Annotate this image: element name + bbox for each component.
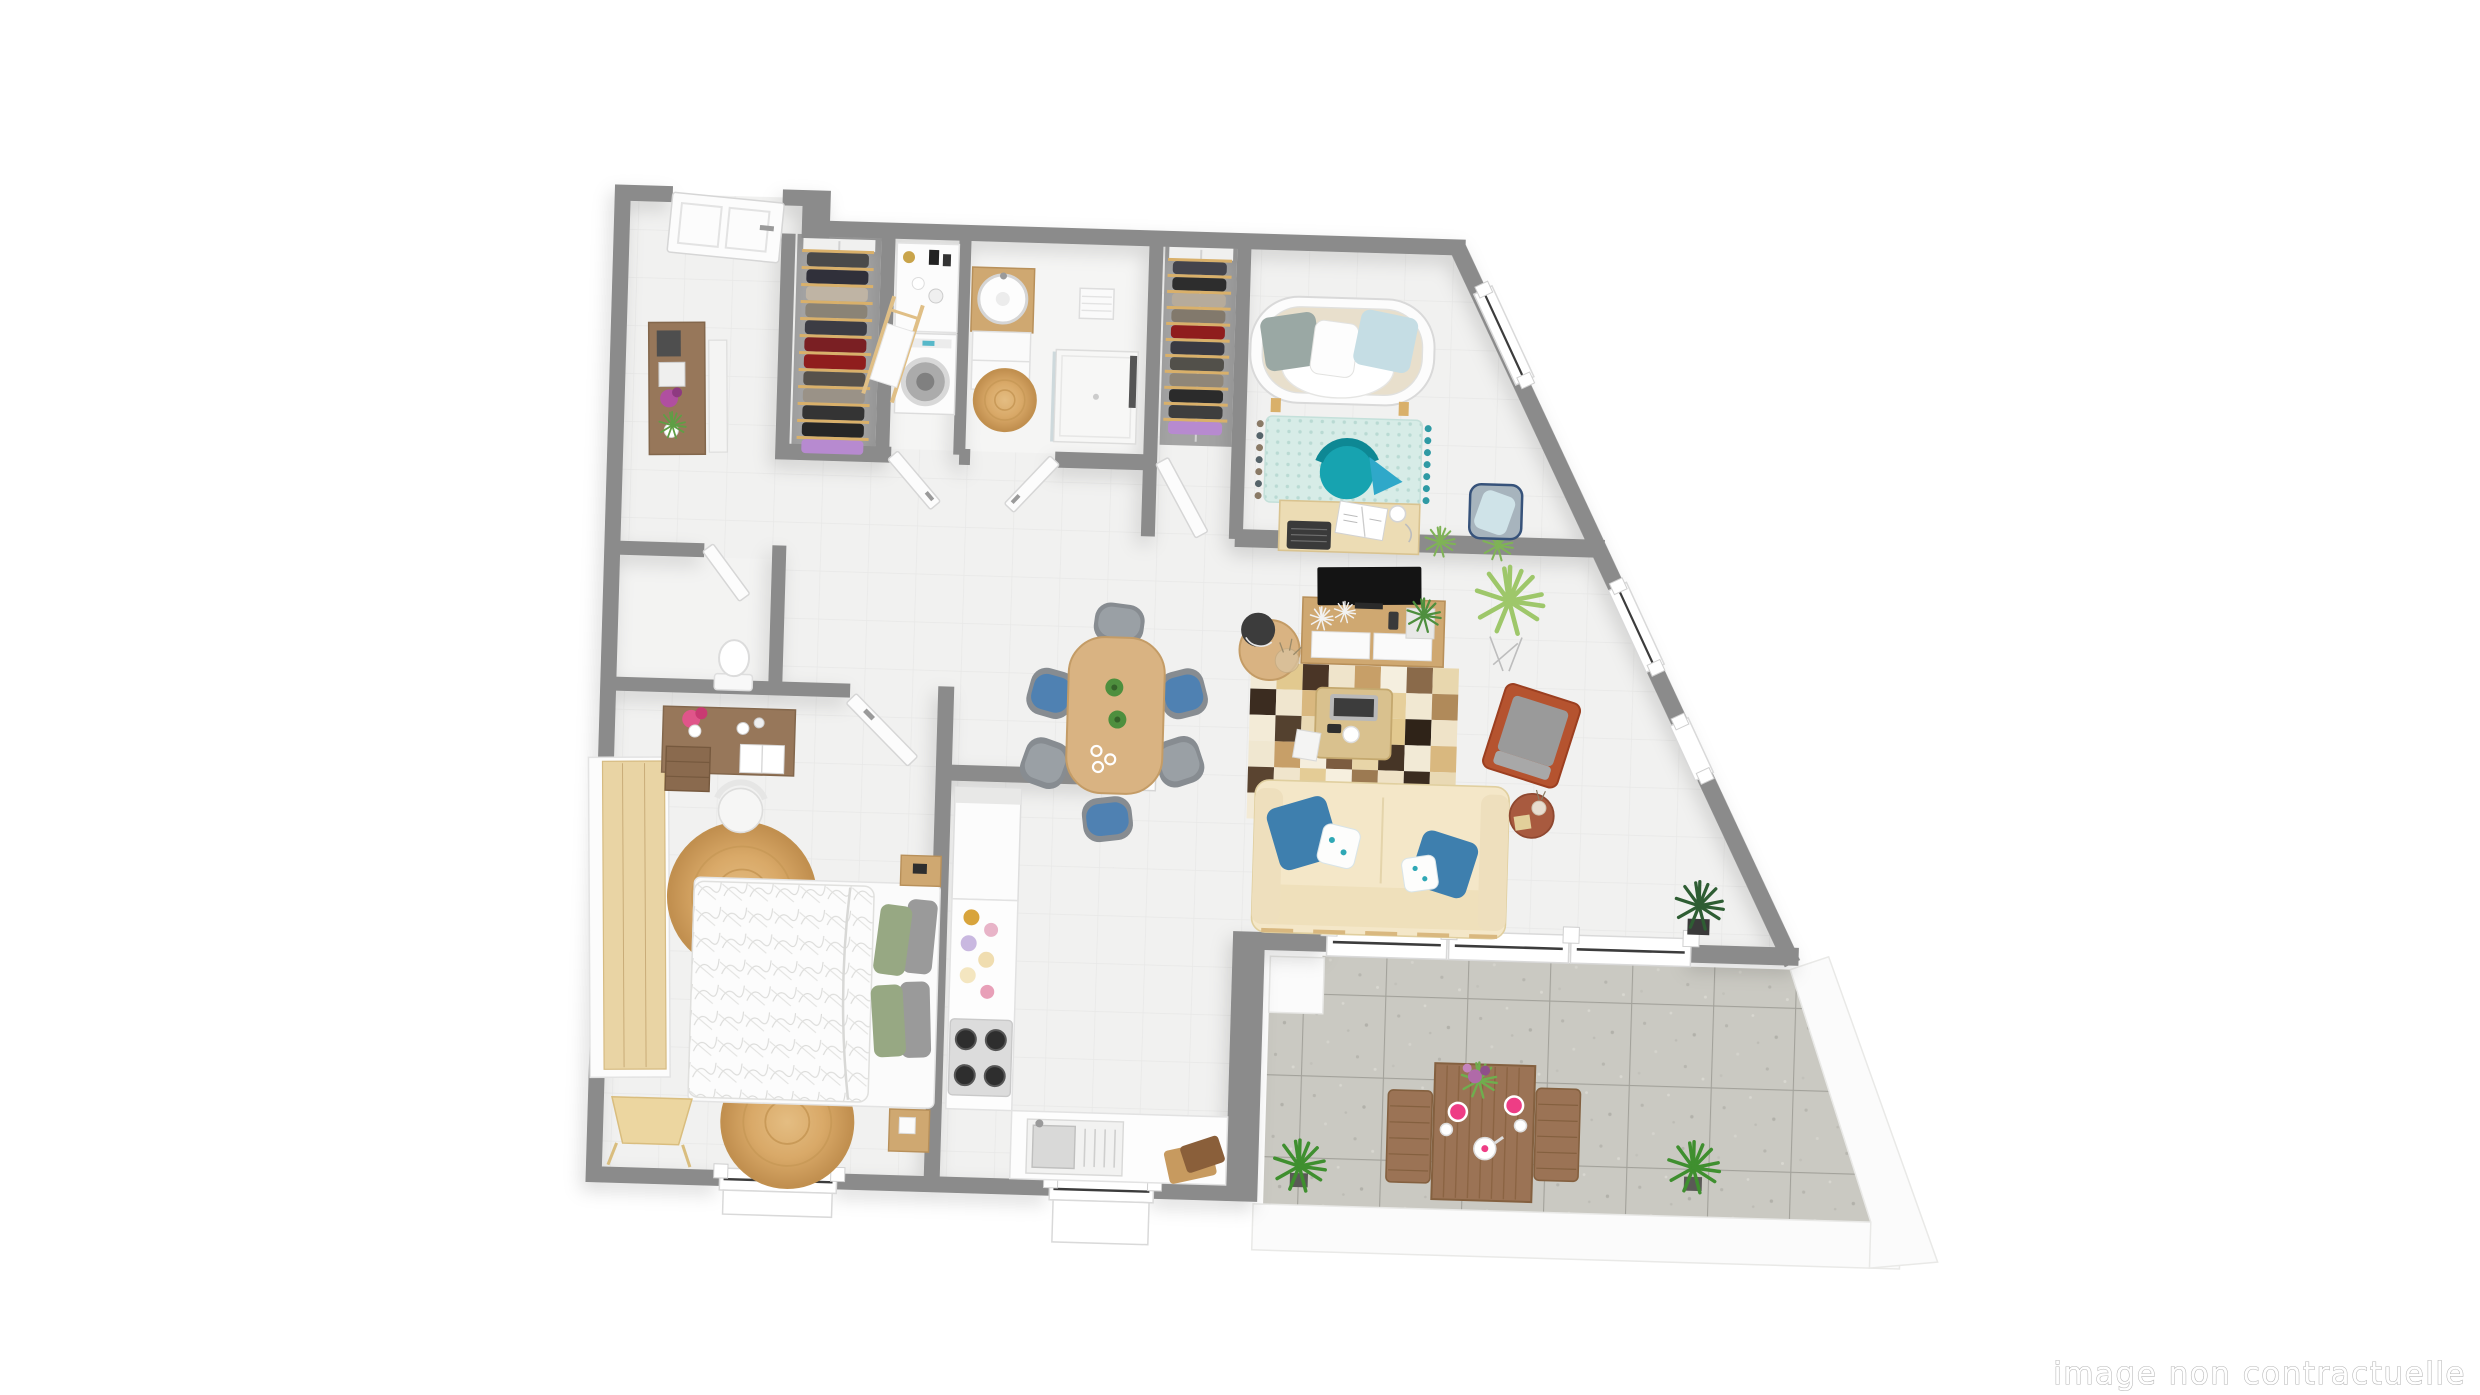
crib bbox=[1249, 295, 1436, 416]
sofa-pillow-floral bbox=[1401, 854, 1440, 893]
rug-patch bbox=[1430, 746, 1457, 773]
book-stack bbox=[1293, 729, 1321, 761]
garment bbox=[804, 337, 866, 353]
nightstand-top bbox=[900, 855, 941, 886]
photo-frame bbox=[657, 330, 681, 356]
toiletry-jar bbox=[912, 277, 924, 289]
kitchen-glazed-door bbox=[1042, 1174, 1162, 1245]
rug-patch bbox=[1302, 664, 1329, 691]
garment bbox=[804, 354, 866, 370]
dining-table bbox=[1065, 636, 1166, 795]
plate-pink bbox=[1449, 1103, 1468, 1122]
rug-patch bbox=[1276, 689, 1303, 716]
garment bbox=[1172, 277, 1226, 292]
remote-phone bbox=[1388, 612, 1399, 630]
nightstand-bottom bbox=[888, 1109, 929, 1152]
storage-basket bbox=[1469, 484, 1523, 540]
terrace-bench-right bbox=[1534, 1088, 1581, 1181]
tall-unit-fridge bbox=[952, 787, 1021, 901]
closet-rack-2 bbox=[1163, 258, 1232, 436]
garment bbox=[1171, 309, 1225, 324]
terrace-parapet-corner bbox=[1269, 956, 1325, 1014]
garment bbox=[1169, 389, 1223, 404]
garment bbox=[807, 252, 869, 268]
shower bbox=[1052, 350, 1139, 444]
laptop bbox=[1287, 521, 1332, 550]
crib-pillow-blue bbox=[1352, 308, 1420, 375]
garment bbox=[805, 320, 867, 336]
garment bbox=[1170, 357, 1224, 372]
wc-floor bbox=[616, 555, 785, 684]
terrace-dining-table bbox=[1431, 1061, 1535, 1202]
toiletry-jar bbox=[929, 289, 943, 303]
kitchen-sink bbox=[1026, 1119, 1124, 1176]
garment bbox=[803, 388, 865, 404]
laptop bbox=[1329, 694, 1378, 721]
rug-patch bbox=[1432, 694, 1459, 721]
floor-plan-render: image non contractuelle bbox=[0, 0, 2480, 1395]
cup bbox=[1514, 1120, 1526, 1132]
photo-frame bbox=[659, 362, 685, 386]
jute-rug-bath bbox=[973, 368, 1037, 432]
desk-cup bbox=[737, 722, 749, 734]
crib-foot bbox=[1271, 398, 1281, 412]
garment bbox=[1172, 293, 1226, 308]
rug-patch bbox=[1432, 668, 1459, 695]
console-table bbox=[649, 322, 728, 454]
rug-patch bbox=[1406, 667, 1433, 694]
candle bbox=[1343, 726, 1359, 742]
rug-patch bbox=[1431, 720, 1458, 747]
garment bbox=[1168, 405, 1222, 420]
terrace-bench-left bbox=[1386, 1090, 1433, 1183]
front-door bbox=[667, 192, 784, 263]
garment bbox=[802, 422, 864, 438]
garment bbox=[805, 303, 867, 319]
garment bbox=[802, 405, 864, 421]
dining-chair bbox=[1080, 795, 1135, 844]
garment bbox=[1171, 325, 1225, 340]
small-vase bbox=[1532, 801, 1546, 815]
closet-1 bbox=[796, 238, 875, 455]
cup bbox=[1440, 1123, 1452, 1135]
rug-patch bbox=[1404, 745, 1431, 772]
toiletry-bottle bbox=[943, 254, 951, 266]
rug-patch bbox=[1250, 688, 1277, 715]
terrace bbox=[1252, 940, 1947, 1270]
garment bbox=[803, 371, 865, 387]
garment bbox=[806, 269, 868, 285]
wardrobe bbox=[588, 757, 670, 1077]
rug-patch bbox=[1405, 719, 1432, 746]
toiletry-bottle bbox=[929, 250, 939, 265]
apartment-plan bbox=[574, 184, 1968, 1270]
garment bbox=[806, 286, 868, 302]
gas-hob bbox=[948, 1019, 1012, 1097]
desk-lamp bbox=[1389, 506, 1405, 522]
rug-patch bbox=[1249, 714, 1276, 741]
sink-counter bbox=[1010, 1111, 1228, 1187]
sofa bbox=[1251, 780, 1509, 939]
garment bbox=[1169, 373, 1223, 388]
desk-cup bbox=[754, 718, 764, 728]
garment bbox=[801, 439, 863, 455]
garment bbox=[1170, 341, 1224, 356]
garment bbox=[1168, 421, 1222, 436]
bedroom2-desk bbox=[1278, 499, 1419, 554]
book bbox=[1514, 815, 1532, 831]
garment bbox=[1173, 261, 1227, 276]
rug-patch bbox=[1406, 693, 1433, 720]
crib-pillow-white bbox=[1309, 319, 1360, 378]
tv bbox=[1317, 567, 1421, 606]
camera bbox=[1327, 724, 1341, 733]
plate-pink bbox=[1505, 1096, 1524, 1115]
watermark-text: image non contractuelle bbox=[2053, 1356, 2466, 1392]
hob-counter bbox=[946, 899, 1018, 1111]
crib-foot bbox=[1399, 402, 1409, 416]
double-bed bbox=[688, 877, 941, 1108]
entrance-hall bbox=[645, 320, 732, 457]
rug-patch bbox=[1248, 740, 1275, 767]
